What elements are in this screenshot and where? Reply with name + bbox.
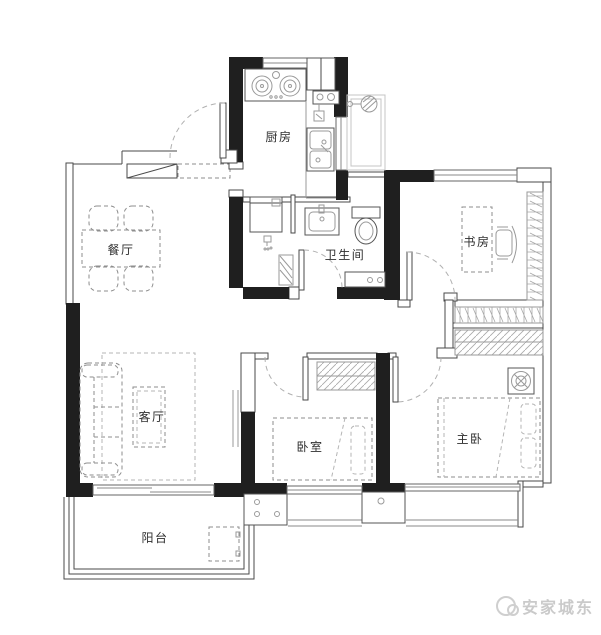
room-label-living: 客厅 bbox=[138, 409, 165, 424]
room-label-bedroom: 卧室 bbox=[296, 439, 323, 454]
master-bedroom-door bbox=[393, 357, 441, 402]
bedroom-wardrobe bbox=[317, 362, 375, 390]
faucet-icon bbox=[314, 104, 324, 121]
room-label-study: 书房 bbox=[463, 234, 490, 249]
dining-chair bbox=[124, 206, 153, 231]
fridge bbox=[307, 58, 335, 90]
study-window bbox=[434, 170, 517, 181]
bathroom-cabinet bbox=[345, 272, 385, 287]
kitchen-service-window bbox=[336, 117, 347, 170]
watermark-text: 安家城东 bbox=[522, 598, 594, 617]
bedroom-furniture bbox=[273, 362, 375, 480]
master-bed bbox=[438, 398, 540, 477]
balcony-sliding-door bbox=[93, 485, 214, 495]
kitchen-sink bbox=[307, 128, 334, 171]
ac-platform-left bbox=[244, 494, 287, 525]
toilet bbox=[352, 207, 380, 244]
watermark: 安家城东 bbox=[497, 597, 594, 617]
kitchen-fixtures bbox=[245, 58, 339, 198]
room-label-master: 主卧 bbox=[456, 432, 483, 446]
master-bedroom-window bbox=[405, 484, 520, 491]
master-wardrobe bbox=[455, 330, 543, 355]
dining-chair bbox=[89, 266, 118, 291]
dining-chair bbox=[89, 206, 118, 231]
room-label-bathroom: 卫生间 bbox=[325, 248, 366, 262]
room-label-kitchen: 厨房 bbox=[265, 129, 292, 144]
balcony-appliance bbox=[209, 527, 239, 561]
bookshelf bbox=[527, 192, 543, 300]
sofa bbox=[80, 363, 122, 477]
dining-chair bbox=[124, 266, 153, 291]
study-closet-strip bbox=[455, 307, 543, 323]
room-labels: 厨房 餐厅 卫生间 书房 客厅 卧室 主卧 阳台 bbox=[107, 129, 490, 545]
floor-plan-page: 厨房 餐厅 卫生间 书房 客厅 卧室 主卧 阳台 安家城东 bbox=[0, 0, 601, 635]
bedroom-door bbox=[265, 357, 308, 400]
room-label-dining: 餐厅 bbox=[107, 242, 134, 257]
bedroom-window bbox=[287, 486, 362, 494]
shower-cabinet bbox=[250, 197, 282, 232]
shower-head-icon bbox=[264, 236, 272, 250]
bathroom-sink bbox=[305, 205, 339, 235]
room-label-balcony: 阳台 bbox=[141, 530, 168, 545]
tv-console bbox=[233, 390, 238, 447]
ac-outdoor-unit-icon bbox=[348, 96, 378, 112]
ac-platform-right bbox=[362, 492, 405, 523]
study-chair bbox=[496, 226, 517, 263]
hob-unit bbox=[313, 91, 339, 104]
stove-counter bbox=[245, 69, 306, 101]
floor-plan-drawing: 厨房 餐厅 卫生间 书房 客厅 卧室 主卧 阳台 安家城东 bbox=[0, 0, 601, 635]
shower-screen bbox=[279, 255, 293, 285]
bathroom-fixtures bbox=[250, 197, 385, 287]
swirl-badge-icon bbox=[497, 597, 518, 615]
ceiling-fan-icon bbox=[508, 368, 534, 394]
entry-door bbox=[170, 103, 237, 163]
equipment-platform bbox=[347, 95, 385, 170]
master-furniture bbox=[438, 307, 543, 477]
